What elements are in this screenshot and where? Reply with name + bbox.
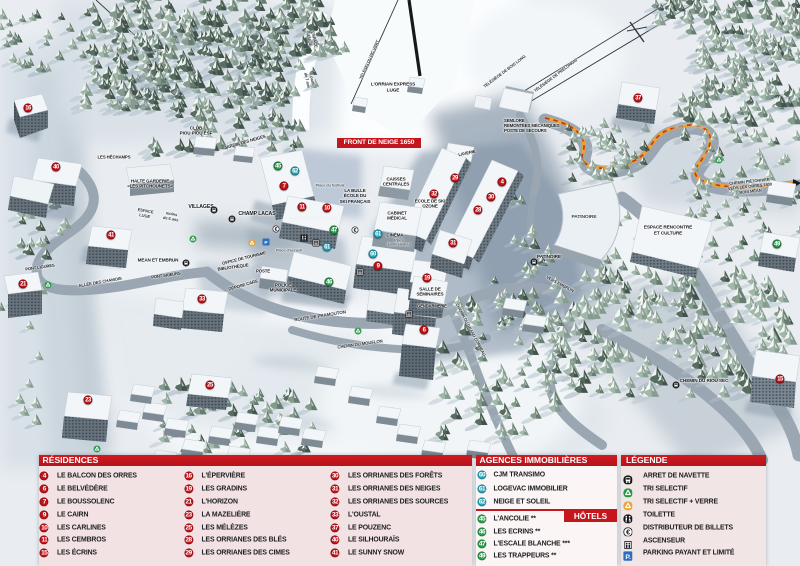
svg-text:€: € [275, 227, 278, 233]
svg-text:€: € [354, 228, 357, 234]
svg-text:P.: P. [625, 554, 631, 561]
svg-text:€: € [626, 527, 630, 536]
